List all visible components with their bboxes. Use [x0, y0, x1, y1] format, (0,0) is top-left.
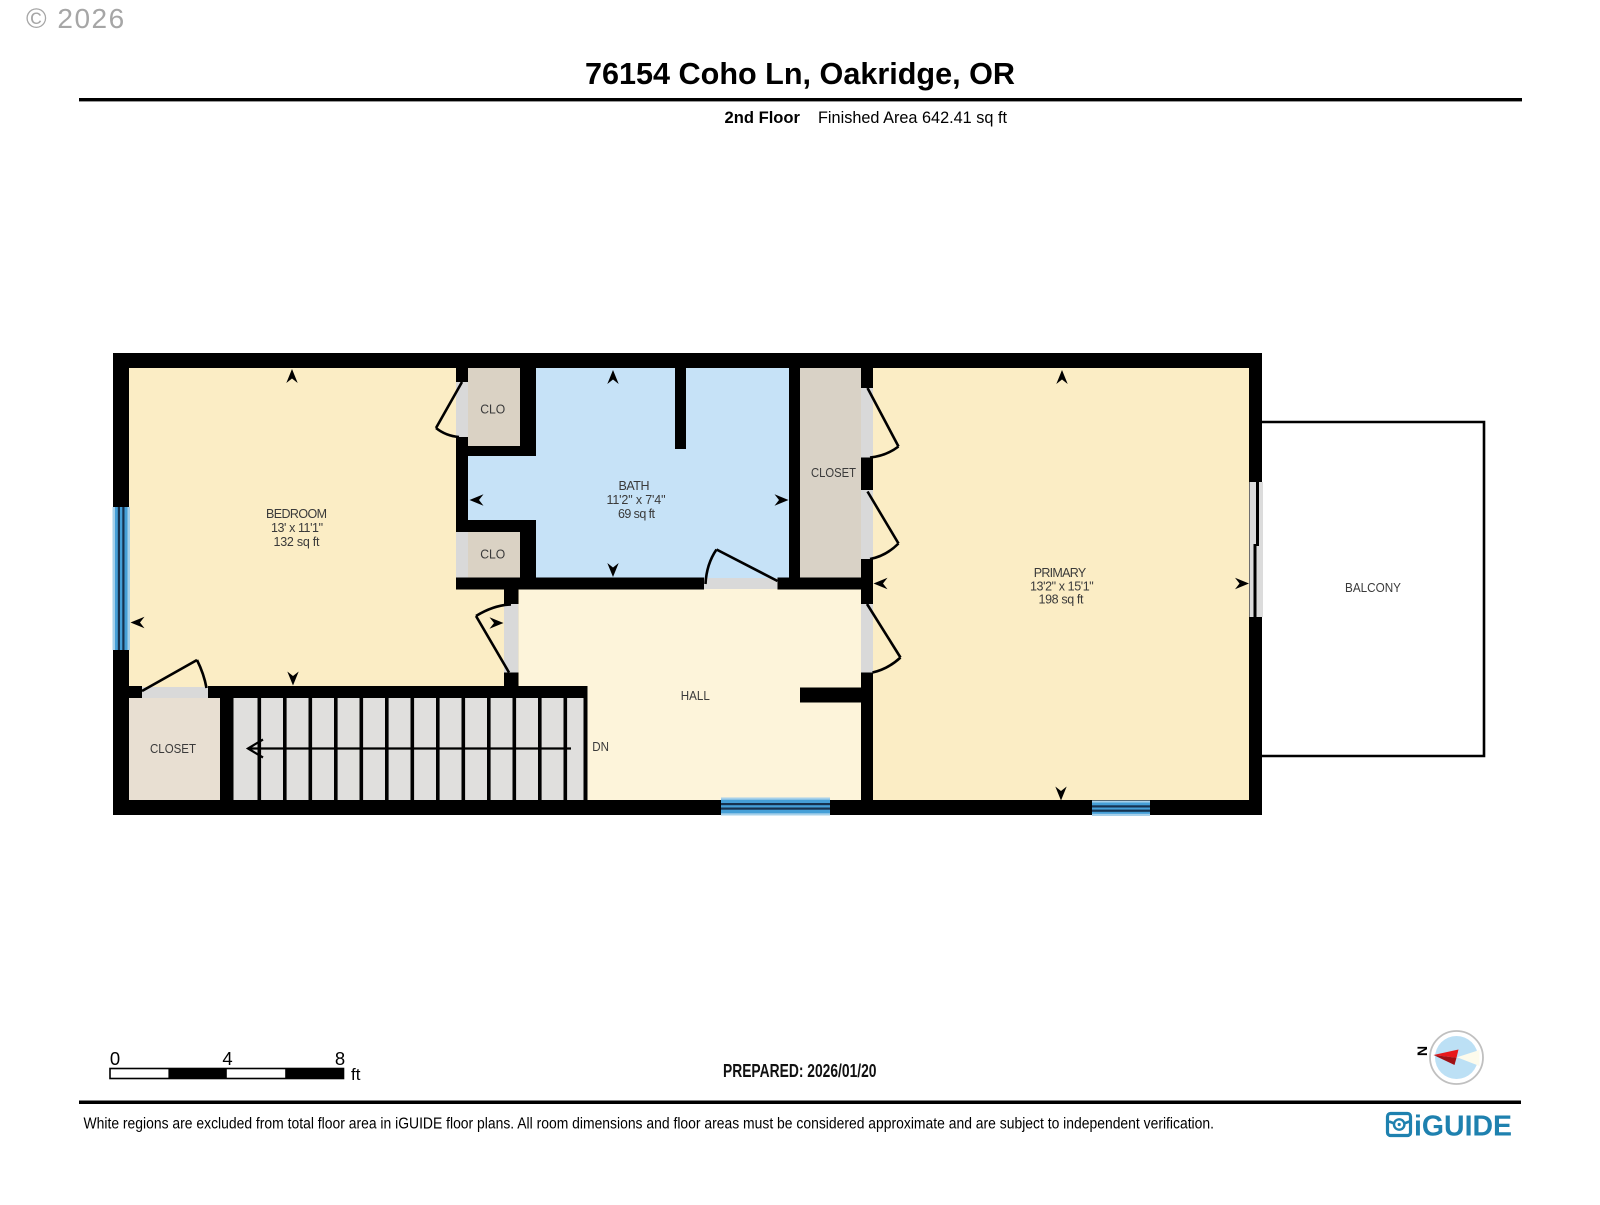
svg-text:198 sq ft: 198 sq ft	[1039, 593, 1085, 607]
svg-text:8: 8	[335, 1048, 345, 1069]
svg-text:iGUIDE: iGUIDE	[1414, 1111, 1512, 1143]
svg-text:11'2" x 7'4": 11'2" x 7'4"	[607, 493, 666, 507]
svg-text:13' x 11'1": 13' x 11'1"	[271, 521, 323, 535]
svg-text:© 2026: © 2026	[26, 3, 126, 34]
svg-text:BEDROOM: BEDROOM	[266, 507, 327, 521]
svg-text:White regions are excluded fro: White regions are excluded from total fl…	[84, 1116, 1215, 1133]
svg-text:76154 Coho Ln, Oakridge, OR: 76154 Coho Ln, Oakridge, OR	[585, 57, 1015, 91]
svg-text:ft: ft	[351, 1065, 361, 1084]
svg-text:132 sq ft: 132 sq ft	[274, 535, 321, 549]
svg-text:CLO: CLO	[480, 548, 505, 562]
svg-text:CLOSET: CLOSET	[811, 466, 856, 480]
svg-text:4: 4	[222, 1048, 232, 1069]
svg-text:PRIMARY: PRIMARY	[1034, 566, 1087, 580]
svg-text:DN: DN	[592, 740, 609, 754]
svg-text:13'2" x 15'1": 13'2" x 15'1"	[1030, 580, 1094, 594]
svg-text:HALL: HALL	[681, 689, 710, 703]
svg-text:69 sq ft: 69 sq ft	[618, 507, 656, 521]
svg-text:CLOSET: CLOSET	[150, 742, 196, 756]
svg-text:BATH: BATH	[619, 479, 650, 493]
svg-text:Finished Area 642.41 sq ft: Finished Area 642.41 sq ft	[818, 109, 1007, 127]
svg-text:2nd Floor: 2nd Floor	[725, 109, 801, 127]
svg-text:CLO: CLO	[480, 403, 505, 417]
svg-text:0: 0	[110, 1048, 120, 1069]
svg-text:N: N	[1414, 1046, 1430, 1056]
svg-text:BALCONY: BALCONY	[1345, 581, 1402, 595]
svg-text:PREPARED: 2026/01/20: PREPARED: 2026/01/20	[723, 1061, 877, 1081]
